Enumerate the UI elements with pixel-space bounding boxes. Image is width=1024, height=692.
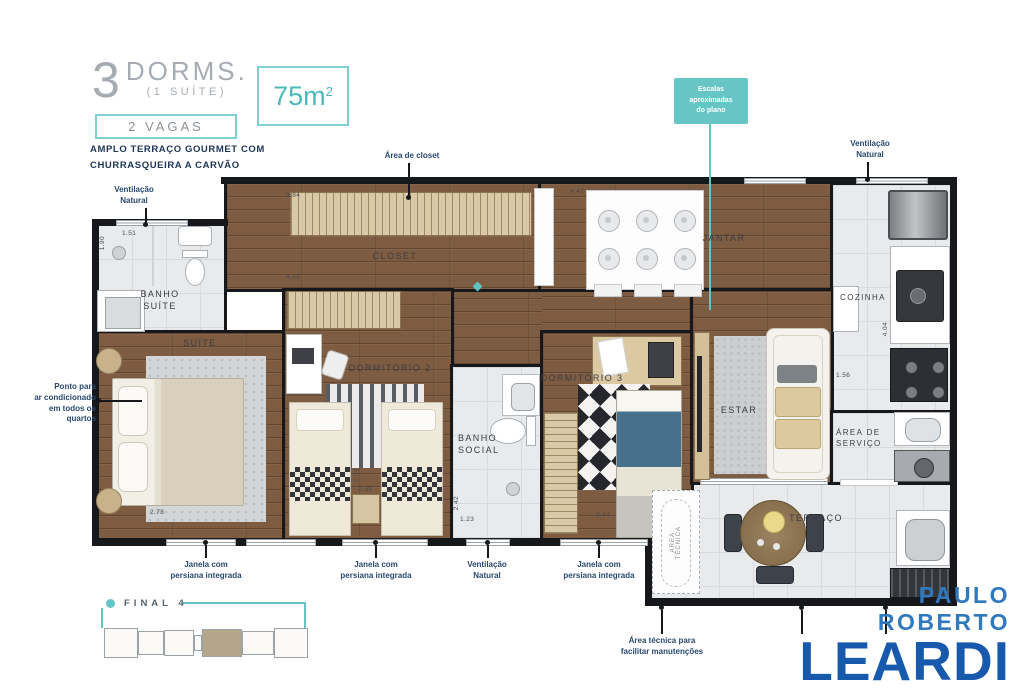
room-label-dormitorio3: DORMITÓRIO 3	[526, 372, 638, 384]
bed-blanket	[290, 467, 350, 501]
suite-shower-drain	[112, 246, 126, 260]
leader-line	[408, 163, 410, 197]
room-label-closet: CLOSET	[350, 250, 440, 262]
stove	[890, 348, 948, 402]
suite-plant-1	[96, 348, 122, 374]
annotation-area-closet: Área de closet	[366, 151, 458, 162]
window-dormitorio3	[560, 539, 648, 546]
keyplan-building	[104, 626, 310, 660]
sofa-pillow-gray	[777, 365, 817, 383]
feature-text: AMPLO TERRAÇO GOURMET COM CHURRASQUEIRA …	[90, 142, 265, 174]
room-label-estar: ESTAR	[708, 404, 770, 416]
terrace-table	[740, 500, 806, 566]
leader-dot	[143, 222, 148, 227]
suite-toilet-tank	[182, 250, 208, 258]
keyplan-label: FINAL 4	[124, 598, 188, 609]
room-label-area-tecnica: ÁREA TÉCNICA	[670, 526, 682, 559]
leader-dot	[596, 540, 601, 545]
terrace-sink	[905, 519, 945, 561]
brand-logo: PAULO ROBERTO LEARDI	[780, 582, 1010, 687]
leader-line	[375, 545, 377, 558]
leader-line	[100, 400, 142, 402]
washer-door	[914, 458, 934, 478]
dining-chair	[674, 284, 702, 297]
measurement: 1.23	[460, 516, 474, 523]
shower-glass	[152, 226, 154, 286]
brand-logo-name: LEARDI	[780, 636, 1010, 687]
room-label-cozinha: COZINHA	[834, 293, 892, 304]
entry-panel	[534, 188, 554, 286]
scale-callout: Escalas aproximadas do plano	[674, 78, 748, 124]
keyplan-line-r	[304, 602, 306, 628]
sofa	[766, 328, 830, 480]
window-suite-2	[246, 539, 316, 546]
area-value: 75m	[273, 81, 326, 112]
wall-top	[221, 177, 957, 184]
leader-dot	[406, 195, 411, 200]
keyplan-unit	[274, 628, 308, 658]
suite-plant-2	[96, 488, 122, 514]
plate	[598, 210, 620, 232]
basin	[511, 383, 535, 411]
keyplan-core	[194, 635, 202, 651]
social-toilet-tank	[526, 416, 536, 446]
dining-chair	[634, 284, 662, 297]
fridge	[888, 190, 948, 240]
annotation-area-tecnica: Área técnica para facilitar manutenções	[606, 636, 718, 658]
measurement: 2.78	[150, 509, 164, 516]
pillow	[388, 409, 436, 431]
room-label-jantar: JANTAR	[688, 232, 760, 244]
keyplan-line-l	[101, 608, 103, 628]
dorm3-laptop	[648, 342, 674, 378]
annotation-ventilacao-b: Ventilação Natural	[456, 560, 518, 582]
tv	[697, 356, 702, 452]
area-tecnica-box: ÁREA TÉCNICA	[652, 490, 700, 594]
area-badge: 75m2	[257, 66, 349, 126]
room-label-dormitorio2: DORMITÓRIO 2	[334, 362, 446, 374]
dorm3-wardrobe	[544, 412, 578, 534]
leader-line	[598, 545, 600, 558]
cup	[773, 543, 780, 550]
terrace-counter	[896, 510, 950, 566]
plate	[636, 248, 658, 270]
scale-callout-text: Escalas aproximadas do plano	[689, 85, 732, 117]
room-label-banho-suite: BANHO SUÍTE	[120, 288, 200, 312]
keyplan-unit	[242, 631, 274, 655]
leader-line	[661, 610, 663, 634]
dorm2-bed-2	[381, 402, 443, 536]
measurement: 1.90	[99, 236, 106, 250]
annotation-janela-2: Janela com persiana integrada	[328, 560, 424, 582]
bed-blanket	[382, 467, 442, 501]
basin	[905, 418, 941, 442]
annotation-janela-3: Janela com persiana integrada	[551, 560, 647, 582]
plate	[598, 248, 620, 270]
leader-dot	[373, 540, 378, 545]
area-sup: 2	[326, 84, 333, 99]
window-suite-1	[166, 539, 236, 546]
keyplan-unit	[138, 631, 164, 655]
parking-badge: 2 VAGAS	[95, 114, 237, 139]
dining-table	[586, 190, 704, 290]
dorm2-desk	[286, 334, 322, 394]
laundry-tank	[894, 412, 950, 446]
keyplan-unit	[164, 630, 194, 656]
callout-leader-line	[709, 124, 711, 310]
plan-header: 3 DORMS. (1 SUÍTE)	[92, 58, 248, 103]
closet-wardrobe	[290, 192, 532, 236]
keyplan-dot	[106, 599, 115, 608]
measurement: 2.34	[353, 468, 360, 482]
brand-logo-top: PAULO ROBERTO	[780, 582, 1010, 636]
measurement: 3.84	[286, 192, 300, 199]
leader-dot	[203, 540, 208, 545]
dining-chair	[594, 284, 622, 297]
plate	[636, 210, 658, 232]
area-tecnica-inner: ÁREA TÉCNICA	[661, 499, 691, 587]
suite-label: (1 SUÍTE)	[126, 86, 248, 98]
measurement: 1.51	[122, 230, 136, 237]
room-label-terraco: TERRAÇO	[776, 512, 856, 524]
plate	[674, 248, 696, 270]
leader-line	[205, 545, 207, 558]
washer	[894, 450, 950, 482]
leader-line	[487, 545, 489, 558]
leader-dot	[96, 398, 101, 403]
measurement: 2.42	[453, 496, 460, 510]
measurement: 4.42	[570, 188, 584, 195]
suite-toilet	[185, 258, 205, 286]
plate	[674, 210, 696, 232]
corridor-floor	[454, 285, 542, 368]
annotation-janela-1: Janela com persiana integrada	[158, 560, 254, 582]
bedroom-label: DORMS.	[126, 58, 248, 84]
dorm2-wardrobe	[287, 291, 401, 329]
keyplan-line-h	[182, 602, 306, 604]
dorm2-nightstand	[352, 494, 380, 524]
measurement: 4.62	[286, 274, 300, 281]
bedroom-count: 3	[92, 58, 120, 103]
dorm2-laptop	[292, 348, 314, 364]
annotation-ventilacao-tl: Ventilação Natural	[102, 185, 166, 207]
leader-dot	[865, 177, 870, 182]
annotation-ventilacao-tr: Ventilação Natural	[838, 139, 902, 161]
measurement: 1.56	[836, 372, 850, 379]
measurement: 4.04	[882, 322, 889, 336]
keyplan-unit	[104, 628, 138, 658]
sofa-pillow-1	[775, 387, 821, 417]
wall-right	[950, 177, 957, 606]
window-dormitorio2	[342, 539, 428, 546]
dorm2-bed-1	[289, 402, 351, 536]
sofa-pillow-2	[775, 419, 821, 449]
window-jantar	[744, 178, 806, 184]
door-servico-terraco	[840, 479, 898, 486]
kitchen-sink-drain	[910, 288, 926, 304]
suite-pillow-2	[118, 442, 148, 492]
leader-dot	[485, 540, 490, 545]
suite-pillow-1	[118, 386, 148, 436]
room-label-suite: SUÍTE	[160, 337, 240, 349]
room-label-servico: ÁREA DE SERVIÇO	[836, 428, 898, 450]
keyplan-unit-highlighted	[202, 629, 242, 657]
social-shower-drain	[506, 482, 520, 496]
pillow	[296, 409, 344, 431]
annotation-ac-note: Ponto para ar condicionado em todos os q…	[14, 382, 96, 425]
room-label-banho-social: BANHO SOCIAL	[454, 432, 518, 456]
measurement: 2.44	[596, 512, 610, 519]
suite-bath-sink	[178, 226, 212, 246]
cup	[757, 539, 764, 546]
measurement: 2.39	[358, 486, 372, 493]
leader-dot	[659, 605, 664, 610]
